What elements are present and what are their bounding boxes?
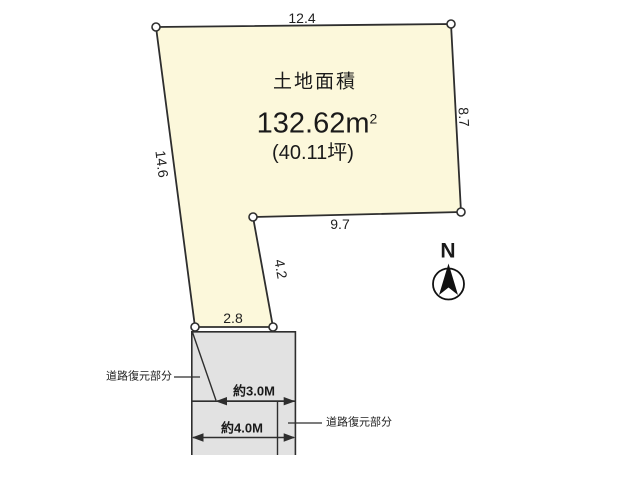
north-label: N <box>440 241 455 262</box>
road-restore-note-left: 道路復元部分 <box>106 372 172 383</box>
area-value: 132.62m2 <box>257 110 378 139</box>
dim-label-left: 14.6 <box>153 150 170 179</box>
dim-label-diagonal: 4.2 <box>272 258 289 280</box>
dim-label-right: 8.7 <box>457 107 472 127</box>
vertex-marker <box>269 323 277 331</box>
area-title: 土地面積 <box>273 73 357 92</box>
area-tsubo: (40.11坪) <box>272 143 354 163</box>
area-value-sup: 2 <box>370 111 378 127</box>
road-width-4m-label: 約4.0M <box>221 422 263 435</box>
north-arrow-icon <box>433 264 464 300</box>
dim-label-bottom: 2.8 <box>223 311 242 325</box>
vertex-marker <box>447 20 455 28</box>
vertex-marker <box>191 323 199 331</box>
road-restore-note-right: 道路復元部分 <box>326 418 392 429</box>
dim-label-mid-bottom: 9.7 <box>330 217 349 231</box>
vertex-marker <box>249 213 257 221</box>
vertex-marker <box>152 23 160 31</box>
vertex-marker <box>457 208 465 216</box>
area-value-number: 132.62m <box>257 108 370 140</box>
road-width-3m-label: 約3.0M <box>233 385 275 398</box>
dim-label-top: 12.4 <box>288 11 315 25</box>
land-parcel-shape <box>156 24 461 327</box>
land-plot-diagram: 12.4 8.7 14.6 9.7 4.2 2.8 土地面積 132.62m2 … <box>0 0 640 480</box>
